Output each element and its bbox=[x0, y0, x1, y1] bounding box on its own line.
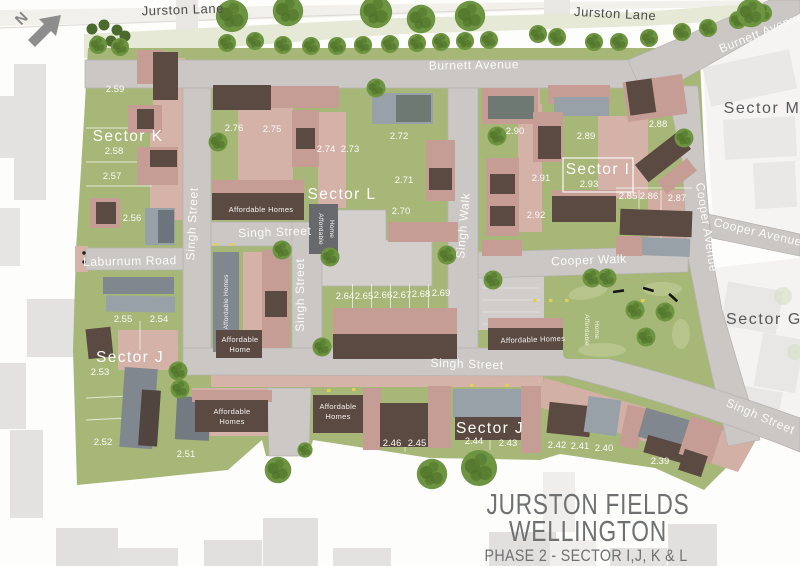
plot-number: 2.92 bbox=[527, 210, 546, 221]
plot-number: 2.40 bbox=[595, 443, 614, 454]
plot-number: 2.66 bbox=[374, 290, 393, 301]
affordable-j-south-west-line2: Homes bbox=[219, 417, 244, 426]
site-plan: Jurston Lane Jurston Lane Burnett Avenue… bbox=[0, 0, 800, 566]
cooper-walk-label: Cooper Walk bbox=[551, 252, 627, 269]
sector-k-label: Sector K bbox=[93, 128, 164, 145]
affordable-cooper-badge-line2: Home bbox=[593, 321, 600, 339]
plot-number: 2.58 bbox=[105, 146, 124, 157]
plot-number: 2.70 bbox=[392, 206, 411, 217]
title-block: JURSTON FIELDS WELLINGTON PHASE 2 - SECT… bbox=[485, 489, 690, 565]
plot-number: 2.54 bbox=[150, 314, 169, 325]
affordable-j-mid-line2: Home bbox=[229, 345, 250, 354]
plot-number: 2.42 bbox=[548, 440, 567, 451]
laburnum-road-label: Laburnum Road bbox=[83, 253, 177, 269]
plot-number: 2.39 bbox=[651, 456, 670, 467]
plot-number: 2.88 bbox=[649, 119, 668, 130]
plot-number: 2.52 bbox=[94, 437, 113, 448]
plot-number: 2.46 bbox=[383, 438, 402, 449]
singh-street-mid-label: Singh Street bbox=[238, 224, 312, 241]
sector-i-label: Sector I bbox=[566, 161, 631, 178]
affordable-center-badge-line1: Affordable bbox=[317, 213, 324, 245]
plot-number: 2.43 bbox=[499, 438, 518, 449]
plot-number: 2.51 bbox=[177, 449, 196, 460]
affordable-l-west-label: Affordable Homes bbox=[223, 274, 230, 330]
jurston-lane-left-label: Jurston Lane bbox=[141, 1, 224, 19]
burnett-avenue-label: Burnett Avenue bbox=[429, 57, 519, 73]
plot-number: 2.45 bbox=[408, 438, 427, 449]
affordable-j-south-west-line1: Affordable bbox=[213, 407, 250, 416]
sector-i-plot-label: 2.93 bbox=[580, 179, 599, 190]
plot-number: 2.56 bbox=[123, 213, 142, 224]
affordable-l-terrace-label: Affordable Homes bbox=[229, 205, 294, 214]
singh-street-center-label: Singh Street bbox=[293, 258, 307, 331]
plot-number: 2.87 bbox=[668, 193, 687, 204]
plot-number: 2.72 bbox=[390, 131, 409, 142]
plot-number: 2.90 bbox=[506, 126, 525, 137]
plot-number: 2.41 bbox=[571, 441, 590, 452]
affordable-cooper-badge-line1: Affordable bbox=[583, 314, 590, 346]
affordable-center-badge-line2: Home bbox=[328, 220, 335, 238]
affordable-j-south-mid-line1: Affordable bbox=[319, 402, 356, 411]
plot-number: 2.55 bbox=[114, 314, 133, 325]
plot-number: 2.73 bbox=[341, 144, 360, 155]
singh-street-bottom-label: Singh Street bbox=[430, 356, 504, 373]
plot-number: 2.57 bbox=[103, 171, 122, 182]
plot-number: 2.76 bbox=[225, 123, 244, 134]
plot-number: 2.86 bbox=[640, 191, 659, 202]
plot-number: 2.75 bbox=[263, 124, 282, 135]
plot-number: 2.44 bbox=[465, 436, 484, 447]
sector-g-label: Sector G bbox=[726, 311, 800, 328]
plot-number: 2.74 bbox=[317, 144, 336, 155]
title-line2: WELLINGTON bbox=[509, 516, 667, 548]
plot-number: 2.68 bbox=[412, 289, 431, 300]
sector-m-label: Sector M bbox=[724, 100, 800, 117]
play-area bbox=[563, 281, 691, 359]
plot-number: 2.71 bbox=[395, 175, 414, 186]
plot-number: 2.65 bbox=[355, 291, 374, 302]
plot-number: 2.67 bbox=[393, 290, 412, 301]
title-line3: PHASE 2 - SECTOR I,J, K & L bbox=[485, 547, 688, 565]
plot-number: 2.59 bbox=[106, 84, 125, 95]
plot-number: 2.89 bbox=[577, 131, 596, 142]
site-plan-svg: Jurston Lane Jurston Lane Burnett Avenue… bbox=[0, 0, 800, 566]
plot-number: 2.85 bbox=[619, 191, 638, 202]
plot-number: 2.64 bbox=[336, 291, 355, 302]
sector-j-bottom-label: Sector J bbox=[456, 420, 524, 437]
affordable-j-mid-line1: Affordable bbox=[221, 335, 258, 344]
affordable-j-south-mid-line2: Homes bbox=[325, 412, 350, 421]
plot-number: 2.69 bbox=[432, 288, 451, 299]
plot-number: 2.91 bbox=[532, 173, 551, 184]
sector-l-label: Sector L bbox=[308, 186, 377, 203]
plot-number: 2.53 bbox=[91, 367, 110, 378]
sector-j-left-label: Sector J bbox=[96, 349, 164, 366]
